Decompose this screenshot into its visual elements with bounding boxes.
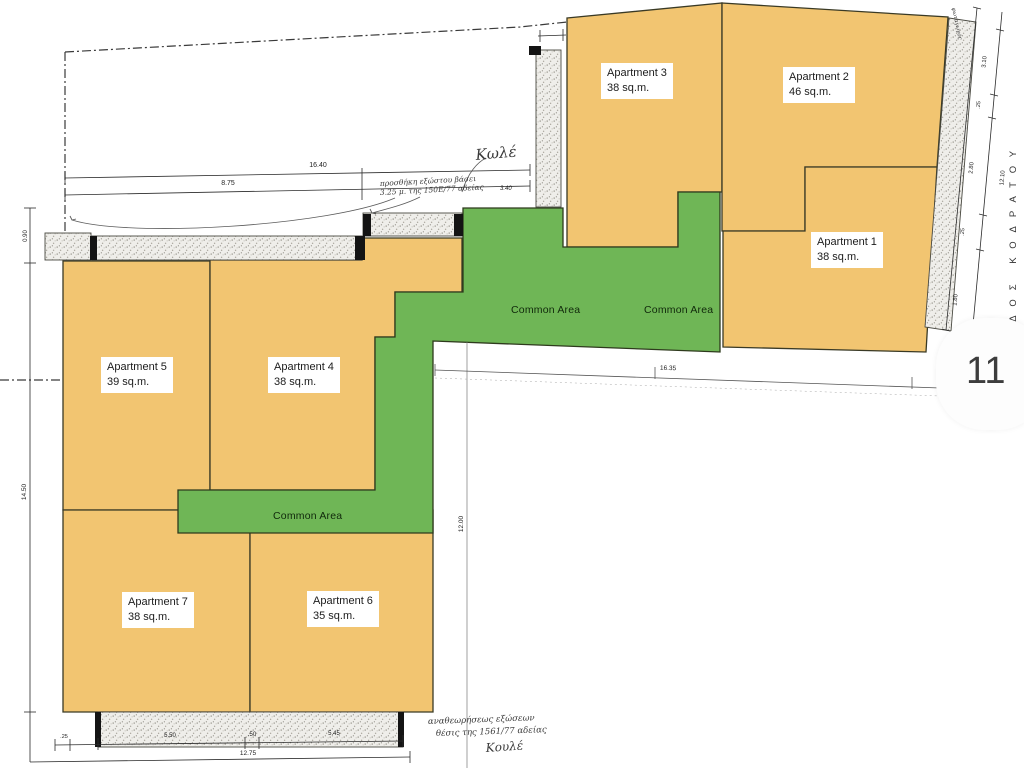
handwriting-signature-bottom: Κουλέ — [484, 738, 524, 755]
street-name-label: ΟΔΟΣ ΚΟΔΡΑΤΟΥ — [1008, 142, 1019, 338]
dim-top-left: 8.75 — [221, 180, 235, 187]
common-area-label-1: Common Area — [511, 304, 580, 316]
apartment-7-name: Apartment 7 — [128, 595, 188, 610]
dim-bottom-0: .25 — [60, 734, 68, 740]
photo-counter-badge: 11 — [936, 318, 1024, 430]
apartment-4-label: Apartment 4 38 sq.m. — [268, 357, 340, 393]
photo-counter-value: 11 — [966, 350, 1005, 393]
handwriting-note-bottom-1: αναθεωρήσεως εξώσεων — [428, 712, 535, 727]
dim-middle-width: 16.35 — [660, 365, 677, 373]
dim-bottom-2: .50 — [248, 732, 257, 738]
dim-right-5: 1.80 — [953, 293, 960, 306]
apartment-6-label: Apartment 6 35 sq.m. — [307, 591, 379, 627]
common-area-label-3: Common Area — [273, 510, 342, 522]
apartment-3-area: 38 sq.m. — [607, 81, 667, 96]
dim-left-total: 14.50 — [21, 483, 28, 500]
dim-top-total: 16.40 — [309, 162, 327, 169]
handwriting-note-small: 3.40 — [500, 186, 512, 192]
dim-right-total: 12.10 — [999, 170, 1006, 186]
dim-bottom-1: 5.50 — [164, 733, 176, 739]
apartment-1-name: Apartment 1 — [817, 235, 877, 250]
apartment-regions — [63, 3, 948, 712]
apartment-1-area: 38 sq.m. — [817, 250, 877, 265]
apartment-7-area: 38 sq.m. — [128, 610, 188, 625]
apartment-2-name: Apartment 2 — [789, 70, 849, 85]
apartment-5-area: 39 sq.m. — [107, 375, 167, 390]
apartment-6-area: 35 sq.m. — [313, 609, 373, 624]
dim-right-1: 3.10 — [982, 55, 989, 68]
top-dimension-lines — [65, 29, 566, 201]
dim-right-2: .25 — [976, 101, 983, 109]
dim-bottom-total: 12.75 — [240, 750, 257, 757]
dim-bottom-3: 5.45 — [328, 731, 340, 737]
apartment-4-area: 38 sq.m. — [274, 375, 334, 390]
handwriting-note-bottom-2: θέσις της 1561/77 αδείας — [436, 724, 547, 739]
common-area-label-2: Common Area — [644, 304, 713, 316]
apartment-3-name: Apartment 3 — [607, 66, 667, 81]
apartment-2-label: Apartment 2 46 sq.m. — [783, 67, 855, 103]
apartment-5-name: Apartment 5 — [107, 360, 167, 375]
parcel-width-line — [435, 364, 940, 396]
apartment-7-label: Apartment 7 38 sq.m. — [122, 592, 194, 628]
apartment-5-label: Apartment 5 39 sq.m. — [101, 357, 173, 393]
dim-right-4: .25 — [960, 228, 967, 236]
apartment-4-name: Apartment 4 — [274, 360, 334, 375]
apartment-3-label: Apartment 3 38 sq.m. — [601, 63, 673, 99]
handwriting-signature-top: Κωλέ — [474, 142, 517, 164]
apartment-6-name: Apartment 6 — [313, 594, 373, 609]
dim-middle-height: 12.00 — [458, 515, 465, 532]
dim-left-upper: 0.90 — [23, 230, 29, 242]
floorplan-page: 16.40 8.75 1.00 0.90 14.50 — [0, 0, 1024, 768]
dim-right-3: 2.80 — [969, 161, 976, 174]
apartment-1-label: Apartment 1 38 sq.m. — [811, 232, 883, 268]
apartment-2-area: 46 sq.m. — [789, 85, 849, 100]
